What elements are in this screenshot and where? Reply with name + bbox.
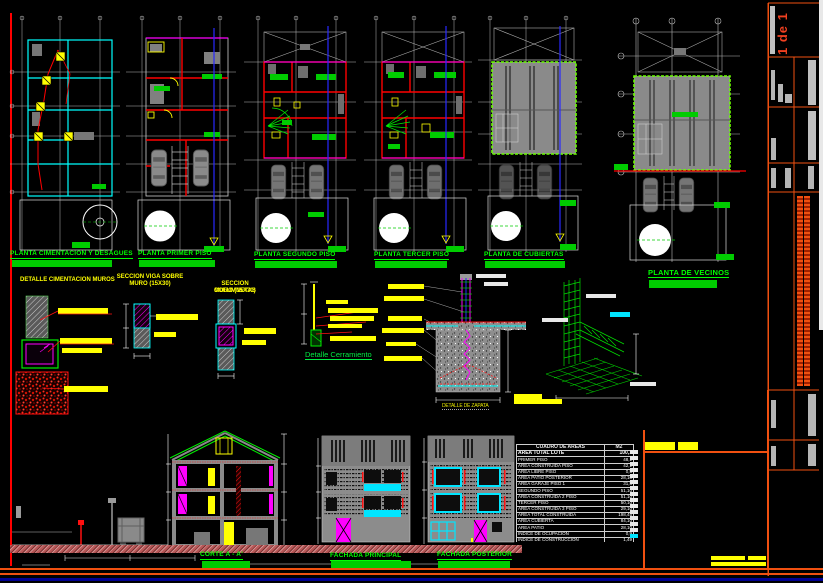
plan-label-primer-piso: PLANTA PRIMER PISO — [138, 250, 212, 259]
fachada-posterior-drawing — [422, 428, 520, 550]
titleblock-yellow-bar-1 — [645, 442, 675, 450]
titleblock-yellow-bar-2 — [678, 442, 698, 450]
plan-label-cubiertas: PLANTA DE CUBIERTAS — [484, 251, 564, 260]
plan-cimentacion-drawing — [8, 14, 122, 254]
detail-cimentacion-muros-drawing — [14, 292, 116, 418]
sheet-number: 1 de 1 — [775, 5, 790, 55]
detail-columnetas-drawing — [210, 296, 302, 382]
section-bar-fachada-posterior — [438, 561, 510, 568]
section-label-corte: CORTE A - A' — [200, 551, 243, 560]
plan-label-tercer-piso: PLANTA TERCER PISO — [374, 251, 449, 260]
areas-table: CUADRO DE AREAS M2 AREA TOTAL LOTE100,1 … — [516, 444, 634, 542]
plan-bar-primer-piso — [139, 260, 215, 267]
plan-bar-cimentacion — [12, 260, 112, 267]
detail-label-columnetas-line2: MURO (15X30) — [202, 288, 268, 295]
fachada-principal-drawing — [316, 428, 418, 550]
plan-bar-segundo-piso — [255, 261, 337, 268]
plan-label-cimentacion: PLANTA CIMENTACION Y DESAGUES — [10, 250, 133, 259]
titleblock-vline-right — [767, 390, 769, 570]
title-strip: 1 de 1 — [762, 0, 820, 583]
detail-refuerzo-iso-drawing — [536, 274, 660, 408]
section-label-fachada-posterior: FACHADA POSTERIOR — [437, 551, 512, 560]
detail-label-viga-line1: SECCION VIGA SOBRE — [112, 274, 188, 281]
plan-bar-tercer-piso — [375, 261, 447, 268]
street-scene-drawing — [12, 470, 168, 552]
corte-drawing — [166, 424, 288, 550]
plan-tercer-piso-drawing — [362, 14, 474, 258]
titleblock-hline — [643, 451, 769, 453]
titleblock-yellow-bar-5 — [711, 562, 766, 566]
plan-bar-cubiertas — [485, 261, 565, 268]
plan-cubiertas-drawing — [476, 14, 584, 258]
yellow-step-detail — [514, 392, 564, 404]
plan-label-vecinos: PLANTA DE VECINOS — [648, 269, 729, 278]
detail-label-cimentacion-muros: DETALLE CIMENTACION MUROS — [20, 277, 115, 284]
detail-zapata-drawing — [380, 272, 532, 406]
areas-table-container: CUADRO DE AREAS M2 AREA TOTAL LOTE100,1 … — [516, 444, 636, 542]
stamp-column — [629, 450, 641, 542]
plan-primer-piso-drawing — [124, 14, 238, 256]
title-strip-hatched-bar-1 — [797, 196, 803, 386]
title-strip-hatched-bar-2 — [804, 196, 810, 386]
titleblock-yellow-bar-3 — [711, 556, 745, 560]
detail-viga-sobre-muro-drawing — [120, 296, 208, 368]
section-bar-corte — [202, 561, 250, 568]
frame-bottom-navy-line — [0, 578, 823, 581]
plan-vecinos-drawing — [614, 16, 746, 266]
detail-label-viga-line2: MURO (15X30) — [112, 281, 188, 288]
titleblock-yellow-bar-4 — [748, 556, 766, 560]
cad-sheet: 1 de 1 — [0, 0, 823, 583]
frame-bottom-orange-line-2 — [0, 573, 823, 575]
title-strip-grid — [762, 0, 820, 583]
section-label-fachada-principal: FACHADA PRINCIPAL — [330, 552, 401, 561]
plan-segundo-piso-drawing — [242, 14, 358, 258]
detail-label-cerramiento: Detalle Cerramiento — [305, 350, 372, 360]
plan-label-segundo-piso: PLANTA SEGUNDO PISO — [254, 251, 335, 260]
areas-row-label: INDICE DE CONSTRUCCION — [517, 537, 605, 542]
section-bar-fachada-principal — [331, 561, 411, 568]
